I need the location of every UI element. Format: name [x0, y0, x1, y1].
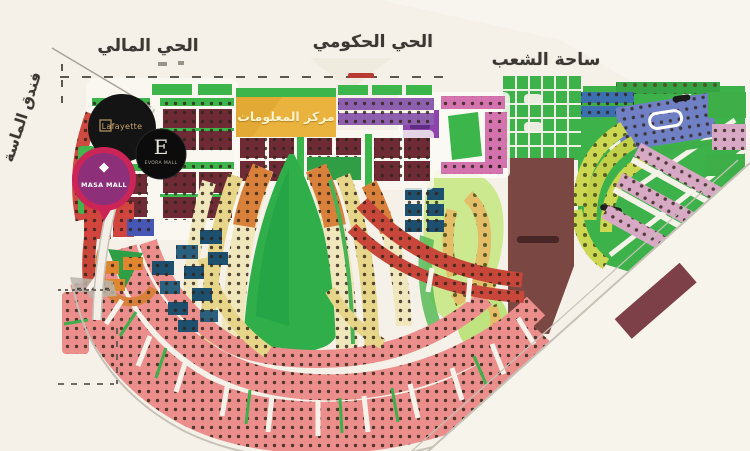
peoples-square-park[interactable]	[503, 76, 581, 160]
peoples-square-label: ساحة الشعب	[486, 50, 606, 70]
evora-logo-subtext: EVORA MALL	[137, 161, 185, 166]
diamond-icon: ◆	[96, 160, 112, 175]
government-district-label: الحي الحكومي	[315, 32, 433, 52]
building-label-smudge	[517, 236, 559, 243]
banner-header	[236, 88, 336, 97]
masa-logo-text: MASA MALL	[76, 181, 132, 189]
financial-district-label: الحي المالي	[97, 36, 199, 56]
masterplan-map: الحي المالي الحي الحكومي ساحة الشعب فندق…	[0, 0, 750, 451]
teal-column-blocks	[405, 188, 444, 232]
evora-logo-letter: E	[149, 135, 173, 159]
information-center-label: مركز المعلومات	[236, 102, 336, 132]
lafayette-logo-text: Lafayette	[90, 122, 154, 131]
masa-logo-circle[interactable]	[75, 150, 133, 208]
red-dash-segment	[348, 73, 374, 78]
map-canvas	[0, 0, 750, 451]
